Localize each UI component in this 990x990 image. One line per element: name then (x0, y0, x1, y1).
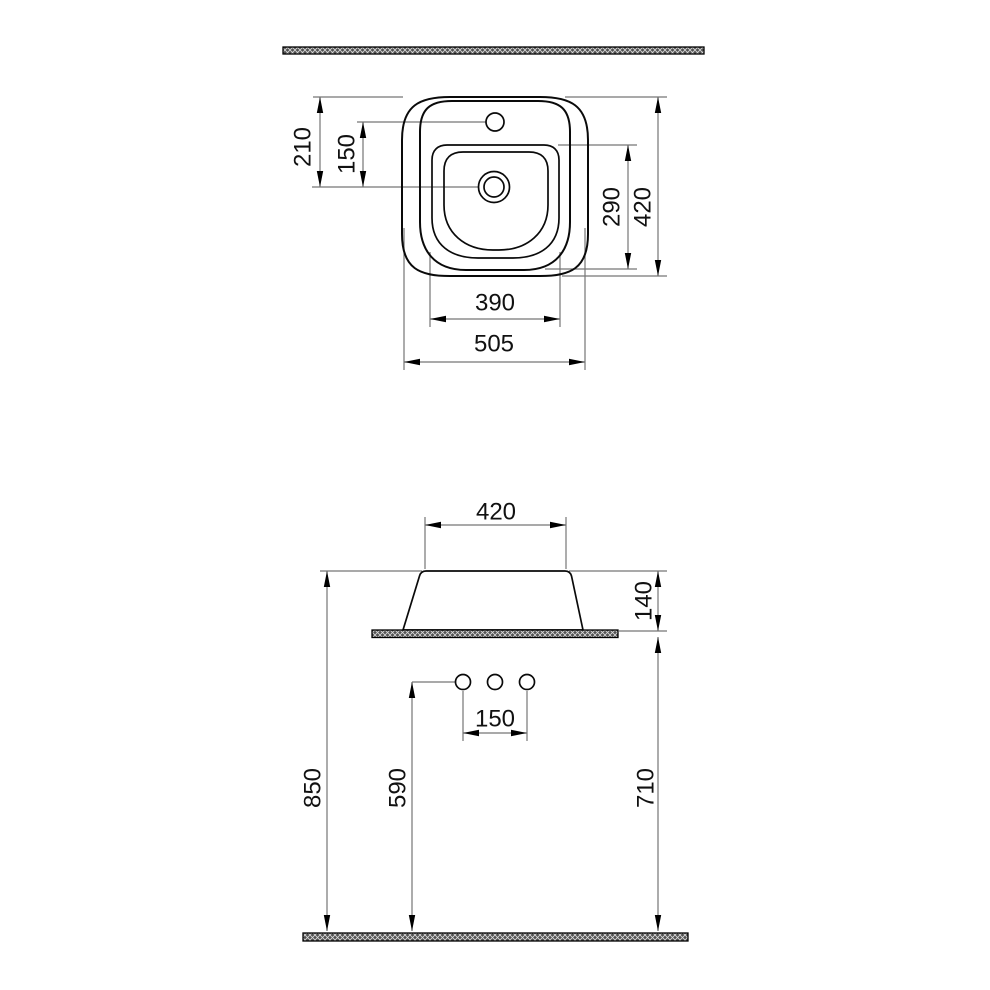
dim-label-overall-depth: 420 (630, 187, 657, 227)
arrowhead (317, 97, 323, 113)
dim-label-basin-width: 390 (475, 290, 515, 317)
faucet-hole-1 (456, 675, 471, 690)
dim-label-rim-height: 850 (300, 768, 327, 808)
arrowhead (409, 682, 415, 698)
faucet-hole-3 (520, 675, 535, 690)
arrowhead (625, 145, 631, 161)
floor-bar (303, 933, 688, 941)
dimension-lines-top (320, 97, 658, 362)
dim-label-overall-width: 505 (474, 331, 514, 358)
arrowhead (425, 522, 441, 528)
dimension-arrows-top (317, 97, 661, 365)
arrowhead (317, 171, 323, 187)
dim-label-rim-above-counter: 140 (631, 581, 658, 621)
arrowhead (544, 316, 560, 322)
sink-technical-drawing: 210 150 420 290 390 505 (0, 0, 990, 990)
countertop-bar (372, 630, 618, 638)
arrowhead (324, 915, 330, 931)
arrowhead (550, 522, 566, 528)
arrowhead (409, 915, 415, 931)
faucet-hole-2 (488, 675, 503, 690)
faucet-hole (486, 113, 504, 131)
arrowhead (625, 253, 631, 269)
arrowhead (655, 97, 661, 113)
drain-inner-circle (484, 177, 504, 197)
dim-label-faucet-to-drain: 150 (334, 134, 361, 174)
dim-label-rim-width: 420 (476, 499, 516, 526)
dim-label-hole-spacing: 150 (475, 706, 515, 733)
technical-drawing-page: 210 150 420 290 390 505 (0, 0, 990, 990)
arrowhead (360, 122, 366, 138)
front-view: 420 140 710 850 590 150 (300, 499, 689, 942)
dim-label-counter-height: 710 (633, 768, 660, 808)
basin-profile (403, 571, 583, 630)
arrowhead (430, 316, 446, 322)
arrowhead (655, 915, 661, 931)
dim-label-basin-depth: 290 (599, 187, 626, 227)
arrowhead (360, 171, 366, 187)
arrowhead (569, 359, 585, 365)
dim-label-holes-height: 590 (385, 768, 412, 808)
arrowhead (655, 260, 661, 276)
plan-view: 210 150 420 290 390 505 (283, 47, 704, 370)
dim-label-rim-to-drain: 210 (290, 127, 317, 167)
arrowhead (324, 571, 330, 587)
wall-section-bar (283, 47, 704, 54)
arrowhead (404, 359, 420, 365)
arrowhead (655, 637, 661, 653)
